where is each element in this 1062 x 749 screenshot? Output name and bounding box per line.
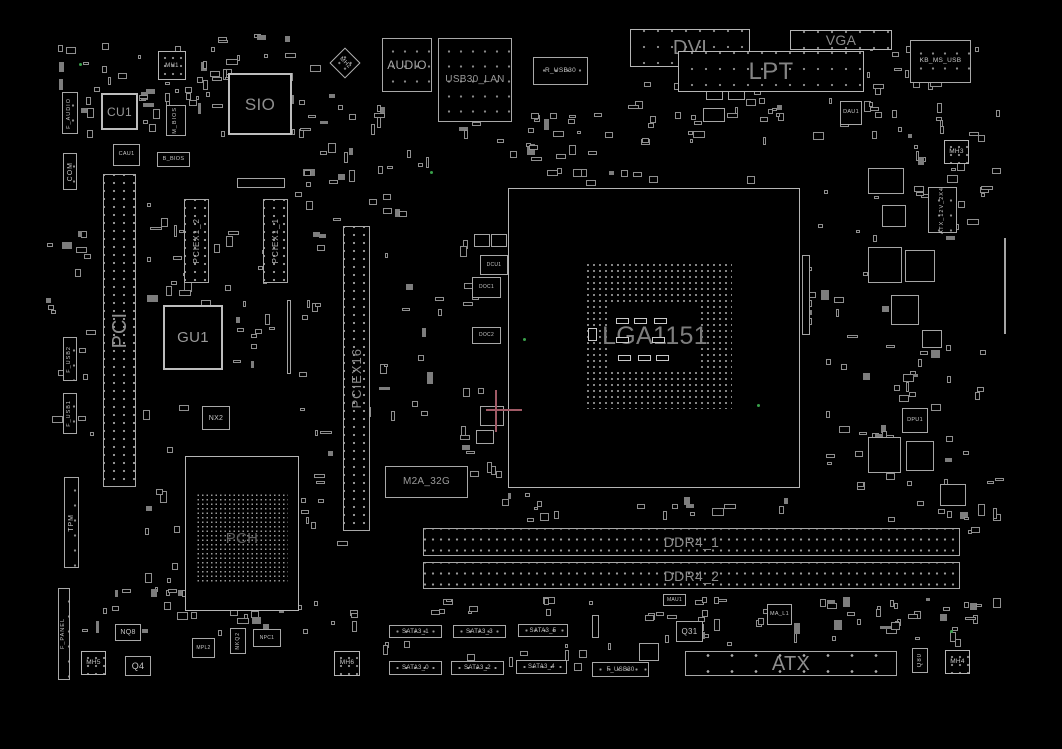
passive-component bbox=[547, 170, 557, 176]
passive-component bbox=[83, 374, 88, 380]
chip-doc1-label: DOC1 bbox=[479, 285, 494, 290]
passive-component bbox=[967, 219, 978, 225]
test-point bbox=[757, 404, 760, 407]
hole-mh4-label: MH4 bbox=[950, 659, 965, 666]
passive-component bbox=[712, 508, 724, 516]
passive-component bbox=[470, 471, 479, 477]
io-audio[interactable]: AUDIO bbox=[382, 38, 432, 92]
passive-component bbox=[391, 411, 395, 421]
chip-q31-label: Q31 bbox=[681, 628, 697, 636]
passive-component bbox=[870, 107, 879, 110]
passive-component bbox=[886, 473, 895, 480]
passive-component bbox=[426, 157, 429, 169]
chip-q31[interactable]: Q31 bbox=[676, 621, 703, 642]
passive-component bbox=[891, 622, 900, 630]
decor-box bbox=[639, 643, 659, 661]
passive-component bbox=[383, 194, 391, 201]
conn-sata3-5[interactable]: SATA3_5 bbox=[518, 624, 568, 637]
passive-component bbox=[565, 644, 568, 648]
passive-component bbox=[328, 451, 333, 456]
passive-component bbox=[940, 614, 947, 621]
passive-component bbox=[446, 599, 453, 603]
conn-f-audio[interactable]: F_AUDIO bbox=[62, 92, 78, 134]
passive-component bbox=[947, 175, 957, 183]
passive-component bbox=[963, 451, 969, 455]
passive-component bbox=[978, 135, 985, 141]
passive-component bbox=[427, 372, 432, 384]
conn-f-usb1[interactable]: F_USB1 bbox=[63, 393, 77, 434]
conn-sata3-0[interactable]: SATA3_0 bbox=[389, 661, 442, 675]
passive-component bbox=[463, 388, 471, 396]
passive-component bbox=[694, 121, 702, 125]
chip-mau1-label: MAU1 bbox=[667, 598, 682, 603]
passive-component bbox=[872, 131, 877, 139]
passive-component bbox=[320, 151, 326, 155]
passive-component bbox=[379, 387, 391, 391]
passive-component bbox=[164, 602, 171, 610]
chip-dau1[interactable]: DAU1 bbox=[840, 101, 862, 125]
io-lpt[interactable]: LPT bbox=[678, 51, 864, 92]
conn-f-usb1-label: F_USB1 bbox=[67, 400, 73, 427]
passive-component bbox=[59, 62, 63, 73]
chip-ma-l1[interactable]: MA_L1 bbox=[767, 604, 792, 625]
passive-component bbox=[915, 637, 919, 641]
passive-component bbox=[684, 497, 689, 505]
chip-nq8[interactable]: NQ8 bbox=[115, 624, 141, 641]
decor-box bbox=[237, 178, 285, 188]
conn-atx-12v-2x4[interactable]: ATX_12V_2X4 bbox=[928, 187, 957, 233]
passive-component bbox=[968, 530, 972, 534]
passive-component bbox=[497, 139, 505, 143]
chip-b-bios-label: B_BIOS bbox=[163, 157, 185, 163]
passive-component bbox=[460, 435, 469, 440]
passive-component bbox=[352, 621, 357, 632]
passive-component bbox=[588, 151, 597, 155]
conn-sata3-1[interactable]: SATA3_1 bbox=[389, 625, 442, 638]
passive-component bbox=[672, 504, 678, 509]
passive-component bbox=[156, 489, 163, 495]
passive-component bbox=[763, 137, 767, 145]
passive-component bbox=[177, 612, 188, 620]
passive-component bbox=[714, 619, 720, 630]
chip-q4-label: Q4 bbox=[132, 662, 145, 671]
passive-component bbox=[867, 72, 870, 78]
passive-component bbox=[378, 166, 383, 174]
passive-component bbox=[824, 190, 827, 194]
passive-component bbox=[909, 392, 916, 397]
passive-component bbox=[863, 373, 869, 380]
passive-component bbox=[78, 231, 82, 238]
chip-nkq2[interactable]: NKQ2 bbox=[230, 628, 246, 654]
decor-box bbox=[868, 247, 902, 283]
passive-component bbox=[650, 116, 657, 124]
conn-sata3-2[interactable]: SATA3_2 bbox=[451, 661, 504, 675]
decor-box bbox=[868, 168, 904, 194]
passive-component bbox=[857, 482, 864, 487]
conn-sata3-2-label: SATA3_2 bbox=[464, 665, 491, 671]
chip-q4[interactable]: Q4 bbox=[125, 656, 151, 676]
passive-component bbox=[776, 113, 781, 117]
passive-component bbox=[174, 526, 180, 534]
passive-component bbox=[841, 364, 847, 370]
passive-component bbox=[758, 618, 764, 625]
passive-component bbox=[502, 499, 509, 506]
passive-component bbox=[992, 168, 1001, 173]
conn-r-usb30[interactable]: R_USB30 bbox=[533, 57, 588, 85]
passive-component bbox=[300, 408, 305, 411]
chip-mau1[interactable]: MAU1 bbox=[663, 594, 686, 606]
passive-component bbox=[143, 120, 148, 124]
passive-component bbox=[759, 98, 765, 104]
passive-component bbox=[633, 172, 642, 177]
passive-component bbox=[122, 589, 131, 593]
passive-component bbox=[153, 109, 159, 120]
conn-m2a-32g[interactable]: M2A_32G bbox=[385, 466, 468, 498]
passive-component bbox=[978, 504, 985, 516]
io-kb-ms-usb[interactable]: KB_MS_USB bbox=[910, 40, 971, 83]
passive-component bbox=[826, 359, 831, 365]
passive-component bbox=[383, 208, 391, 214]
chip-b-bios[interactable]: B_BIOS bbox=[157, 152, 190, 167]
passive-component bbox=[145, 528, 148, 536]
passive-component bbox=[894, 68, 903, 71]
slot-pci[interactable]: PCI bbox=[103, 174, 136, 487]
passive-component bbox=[898, 127, 902, 132]
passive-component bbox=[387, 166, 393, 169]
passive-component bbox=[472, 122, 481, 127]
passive-component bbox=[189, 100, 197, 106]
passive-component bbox=[553, 131, 564, 136]
passive-component bbox=[78, 416, 85, 420]
chip-cau1[interactable]: CAU1 bbox=[113, 144, 140, 166]
passive-component bbox=[642, 138, 649, 143]
passive-component bbox=[257, 35, 266, 40]
passive-component bbox=[528, 128, 534, 133]
slot-ddr4-1[interactable]: DDR4_1 bbox=[423, 528, 960, 556]
passive-component bbox=[150, 227, 162, 230]
passive-component bbox=[894, 385, 900, 391]
passive-component bbox=[784, 498, 788, 505]
chip-q80[interactable]: Q80 bbox=[912, 648, 928, 673]
passive-component bbox=[79, 348, 85, 353]
chip-m-bios[interactable]: M_BIOS bbox=[166, 105, 186, 136]
passive-component bbox=[225, 285, 231, 290]
chip-dcu1[interactable]: DCU1 bbox=[480, 255, 508, 275]
decor-box bbox=[802, 255, 810, 335]
passive-component bbox=[843, 597, 850, 607]
slot-pciex16[interactable]: PCIEX16 bbox=[343, 226, 370, 531]
passive-component bbox=[383, 645, 388, 655]
passive-component bbox=[649, 176, 658, 182]
conn-sata3-4[interactable]: SATA3_4 bbox=[516, 660, 567, 674]
conn-f-panel[interactable]: F_PANEL bbox=[58, 588, 70, 680]
passive-component bbox=[96, 621, 99, 633]
passive-component bbox=[873, 84, 884, 89]
io-vga-label: VGA bbox=[826, 33, 856, 47]
passive-component bbox=[468, 611, 473, 614]
passive-component bbox=[46, 298, 50, 303]
passive-component bbox=[747, 176, 755, 184]
chip-doc1[interactable]: DOC1 bbox=[472, 277, 501, 298]
passive-component bbox=[916, 151, 919, 160]
passive-component bbox=[377, 105, 381, 113]
io-usb30-lan[interactable]: USB30_LAN bbox=[438, 38, 512, 122]
socket-cap bbox=[616, 318, 629, 324]
passive-component bbox=[198, 103, 201, 114]
passive-component bbox=[821, 290, 829, 300]
passive-component bbox=[882, 306, 890, 312]
passive-component bbox=[556, 154, 566, 159]
chip-nx2[interactable]: NX2 bbox=[202, 406, 230, 430]
io-kb-ms-usb-label: KB_MS_USB bbox=[920, 58, 962, 65]
conn-f-usb2-label: F_USB2 bbox=[67, 346, 73, 373]
passive-component bbox=[185, 87, 192, 94]
passive-component bbox=[81, 231, 87, 238]
passive-component bbox=[243, 301, 246, 307]
passive-component bbox=[859, 432, 867, 435]
passive-component bbox=[186, 93, 190, 100]
passive-component bbox=[510, 151, 517, 158]
decor-box bbox=[1004, 238, 1006, 334]
chip-ma-l1-label: MA_L1 bbox=[770, 612, 789, 618]
passive-component bbox=[87, 108, 94, 118]
conn-f-usb30-label: F_USB30 bbox=[606, 667, 634, 673]
chip-dau1-label: DAU1 bbox=[843, 110, 859, 116]
conn-m2a-32g-label: M2A_32G bbox=[403, 477, 450, 487]
passive-component bbox=[467, 654, 475, 661]
passive-component bbox=[913, 374, 918, 378]
passive-component bbox=[579, 650, 587, 658]
passive-component bbox=[66, 47, 77, 55]
passive-component bbox=[404, 641, 410, 648]
passive-component bbox=[438, 309, 442, 316]
passive-component bbox=[212, 104, 224, 107]
passive-component bbox=[917, 501, 923, 506]
passive-component bbox=[103, 608, 107, 614]
passive-component bbox=[487, 462, 492, 474]
passive-component bbox=[951, 168, 956, 172]
passive-component bbox=[931, 404, 941, 411]
passive-component bbox=[980, 350, 987, 355]
conn-com-label: COM bbox=[67, 162, 74, 181]
passive-component bbox=[675, 112, 682, 119]
passive-component bbox=[146, 506, 152, 510]
passive-component bbox=[412, 401, 419, 407]
passive-component bbox=[344, 152, 349, 163]
passive-component bbox=[544, 119, 549, 130]
chip-gu1-label: GU1 bbox=[177, 330, 209, 345]
passive-component bbox=[976, 604, 983, 608]
passive-component bbox=[975, 47, 979, 52]
passive-component bbox=[947, 511, 951, 518]
passive-component bbox=[58, 45, 63, 52]
test-point bbox=[430, 171, 433, 174]
passive-component bbox=[914, 145, 918, 149]
conn-atx-12v-2x4-label: ATX_12V_2X4 bbox=[940, 187, 946, 234]
slot-ddr4-2[interactable]: DDR4_2 bbox=[423, 562, 960, 589]
decor-box bbox=[882, 205, 906, 227]
slot-pciex1-1[interactable]: PCIEX1_1 bbox=[263, 199, 288, 283]
passive-component bbox=[301, 498, 306, 503]
passive-component bbox=[880, 626, 890, 629]
passive-component bbox=[656, 612, 664, 616]
passive-component bbox=[460, 246, 467, 257]
decor-box bbox=[905, 250, 935, 282]
test-point bbox=[950, 630, 953, 633]
passive-component bbox=[338, 174, 345, 180]
passive-component bbox=[946, 236, 955, 240]
chip-nq8-label: NQ8 bbox=[120, 629, 135, 636]
passive-component bbox=[331, 621, 335, 624]
passive-component bbox=[724, 504, 736, 509]
chip-cu1-label: CU1 bbox=[107, 106, 132, 118]
passive-component bbox=[628, 105, 639, 110]
passive-component bbox=[520, 651, 528, 656]
decor-box bbox=[703, 108, 725, 122]
chip-nkq2-label: NKQ2 bbox=[236, 632, 241, 650]
passive-component bbox=[172, 563, 177, 570]
hole-mh6: MH6 bbox=[334, 651, 360, 676]
passive-component bbox=[320, 431, 332, 434]
passive-component bbox=[421, 411, 428, 416]
passive-component bbox=[873, 235, 876, 242]
chip-npc1[interactable]: NPC1 bbox=[253, 629, 281, 647]
passive-component bbox=[374, 113, 385, 117]
chip-gu1[interactable]: GU1 bbox=[163, 305, 223, 370]
conn-tpm[interactable]: TPM bbox=[64, 477, 79, 568]
passive-component bbox=[407, 150, 411, 158]
passive-component bbox=[569, 145, 576, 155]
passive-component bbox=[463, 302, 473, 306]
passive-component bbox=[907, 481, 912, 485]
io-vga[interactable]: VGA bbox=[790, 30, 892, 50]
passive-component bbox=[993, 598, 1001, 608]
passive-component bbox=[174, 225, 177, 237]
passive-component bbox=[920, 351, 928, 355]
passive-component bbox=[179, 230, 184, 233]
passive-component bbox=[311, 522, 316, 529]
conn-atx[interactable]: ATX bbox=[685, 651, 897, 676]
test-point bbox=[523, 338, 526, 341]
chip-mpl2[interactable]: MPL2 bbox=[192, 638, 215, 658]
passive-component bbox=[952, 627, 958, 631]
passive-component bbox=[90, 432, 94, 436]
passive-component bbox=[531, 157, 543, 161]
slot-pciex1-2[interactable]: PCIEX1_2 bbox=[184, 199, 209, 283]
passive-component bbox=[621, 170, 627, 177]
passive-component bbox=[918, 359, 922, 367]
socket-cap bbox=[638, 355, 651, 361]
passive-component bbox=[987, 481, 994, 484]
passive-component bbox=[527, 518, 534, 522]
passive-component bbox=[315, 303, 321, 308]
chip-dpu1[interactable]: DPU1 bbox=[902, 408, 928, 433]
passive-component bbox=[435, 297, 444, 300]
passive-component bbox=[147, 203, 151, 207]
chip-m-bios-label: M_BIOS bbox=[173, 107, 179, 134]
passive-component bbox=[768, 109, 773, 115]
passive-component bbox=[252, 617, 262, 624]
conn-f-panel-label: F_PANEL bbox=[61, 618, 67, 649]
hole-mh4: MH4 bbox=[945, 650, 970, 674]
passive-component bbox=[75, 269, 81, 276]
passive-component bbox=[115, 590, 119, 597]
passive-component bbox=[52, 416, 62, 422]
passive-component bbox=[161, 218, 168, 227]
conn-tpm-label: TPM bbox=[68, 514, 75, 532]
passive-component bbox=[203, 80, 208, 91]
hole-mh3-label: MH3 bbox=[949, 149, 964, 156]
decor-box bbox=[476, 430, 494, 444]
chip-doc2[interactable]: DOC2 bbox=[472, 327, 501, 344]
passive-component bbox=[876, 609, 881, 617]
passive-component bbox=[977, 387, 985, 392]
passive-component bbox=[62, 242, 72, 249]
passive-component bbox=[466, 451, 476, 454]
conn-r-usb30-label: R_USB30 bbox=[545, 68, 576, 75]
chip-nx2-label: NX2 bbox=[209, 415, 224, 422]
passive-component bbox=[328, 143, 336, 152]
passive-component bbox=[594, 113, 602, 117]
socket-cap bbox=[634, 318, 647, 324]
conn-com[interactable]: COM bbox=[63, 153, 77, 190]
conn-sata3-3[interactable]: SATA3_3 bbox=[453, 625, 506, 638]
slot-pciex16-label: PCIEX16 bbox=[350, 348, 363, 408]
passive-component bbox=[315, 430, 318, 436]
chip-sio[interactable]: SIO bbox=[228, 73, 292, 135]
io-audio-label: AUDIO bbox=[387, 59, 427, 71]
passive-component bbox=[727, 642, 732, 646]
passive-component bbox=[179, 290, 190, 296]
passive-component bbox=[314, 601, 317, 606]
passive-component bbox=[813, 132, 825, 139]
conn-f-usb30[interactable]: F_USB30 bbox=[592, 662, 649, 677]
passive-component bbox=[102, 66, 107, 73]
passive-component bbox=[760, 117, 768, 122]
passive-component bbox=[946, 436, 953, 442]
passive-component bbox=[894, 603, 898, 609]
passive-component bbox=[349, 114, 356, 120]
passive-component bbox=[218, 40, 229, 43]
conn-f-usb2[interactable]: F_USB2 bbox=[63, 337, 77, 381]
passive-component bbox=[686, 504, 693, 508]
passive-component bbox=[794, 623, 800, 634]
passive-component bbox=[534, 507, 538, 510]
hole-mh2-label: MH2 bbox=[338, 56, 352, 70]
decor-box bbox=[287, 300, 291, 374]
passive-component bbox=[996, 110, 1001, 117]
board-canvas: LGA1151PCHPCIPCIEX1_2PCIEX1_1PCIEX16GU1N… bbox=[0, 0, 1062, 749]
passive-component bbox=[48, 305, 55, 310]
chip-cu1[interactable]: CU1 bbox=[101, 93, 138, 130]
passive-component bbox=[827, 600, 835, 605]
passive-component bbox=[83, 62, 89, 65]
passive-component bbox=[108, 77, 111, 86]
passive-component bbox=[138, 55, 142, 59]
passive-component bbox=[87, 130, 94, 138]
passive-component bbox=[351, 613, 358, 618]
conn-sata3-0-label: SATA3_0 bbox=[402, 665, 429, 671]
passive-component bbox=[251, 344, 257, 349]
passive-component bbox=[938, 509, 945, 514]
pch-bga-label: PCH bbox=[226, 531, 259, 546]
passive-component bbox=[308, 115, 316, 118]
passive-component bbox=[329, 180, 338, 185]
passive-component bbox=[175, 89, 180, 93]
hole-mh6-label: MH6 bbox=[340, 660, 355, 667]
passive-component bbox=[118, 73, 127, 78]
decor-box bbox=[940, 484, 966, 506]
